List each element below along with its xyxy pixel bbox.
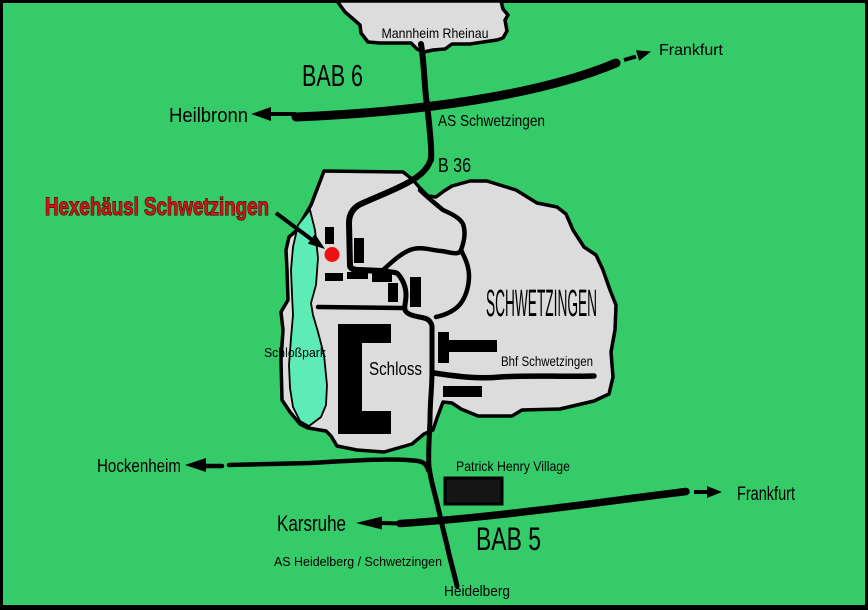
svg-text:Frankfurt: Frankfurt xyxy=(737,484,796,505)
svg-text:Hockenheim: Hockenheim xyxy=(97,456,181,476)
svg-text:Karsruhe: Karsruhe xyxy=(277,511,346,536)
svg-text:Frankfurt: Frankfurt xyxy=(659,42,724,59)
svg-text:B 36: B 36 xyxy=(438,155,471,177)
svg-text:Schloss: Schloss xyxy=(369,359,422,379)
svg-text:Bhf Schwetzingen: Bhf Schwetzingen xyxy=(501,354,593,369)
svg-text:Schloßpark: Schloßpark xyxy=(264,345,326,360)
svg-text:Heidelberg: Heidelberg xyxy=(444,583,510,600)
svg-text:Heilbronn: Heilbronn xyxy=(169,105,248,127)
svg-text:Hexehäusl Schwetzingen: Hexehäusl Schwetzingen xyxy=(45,193,269,221)
svg-text:AS Heidelberg / Schwetzingen: AS Heidelberg / Schwetzingen xyxy=(274,554,442,569)
svg-text:BAB 5: BAB 5 xyxy=(476,521,541,557)
svg-text:Patrick Henry Village: Patrick Henry Village xyxy=(456,458,570,474)
svg-text:SCHWETZINGEN: SCHWETZINGEN xyxy=(486,283,597,325)
svg-text:BAB 6: BAB 6 xyxy=(302,58,363,93)
svg-text:Mannheim Rheinau: Mannheim Rheinau xyxy=(382,25,489,41)
svg-text:AS Schwetzingen: AS Schwetzingen xyxy=(438,113,545,130)
